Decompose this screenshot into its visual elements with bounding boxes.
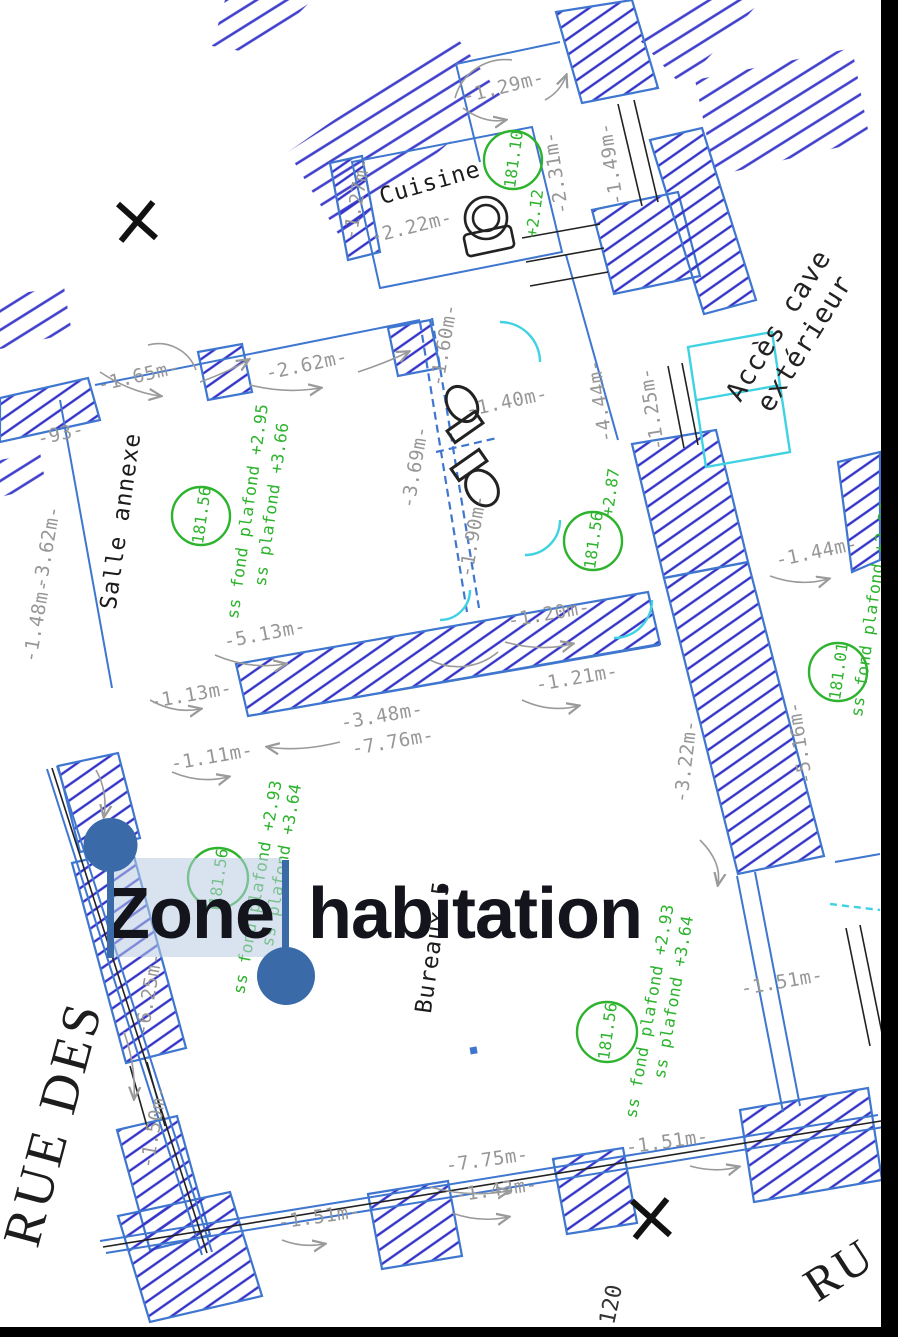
point-marker (470, 1046, 478, 1054)
bottom-letterbox-bar (0, 1327, 898, 1337)
floor-plan-screenshot: -1.29m- -2.31m- -1.49m- -1.27m- -2.22m- … (0, 0, 898, 1337)
annotation-word-selected[interactable]: Zone (106, 874, 274, 954)
right-letterbox-bar (881, 0, 898, 1337)
annotation-word[interactable]: habitation (308, 874, 642, 954)
